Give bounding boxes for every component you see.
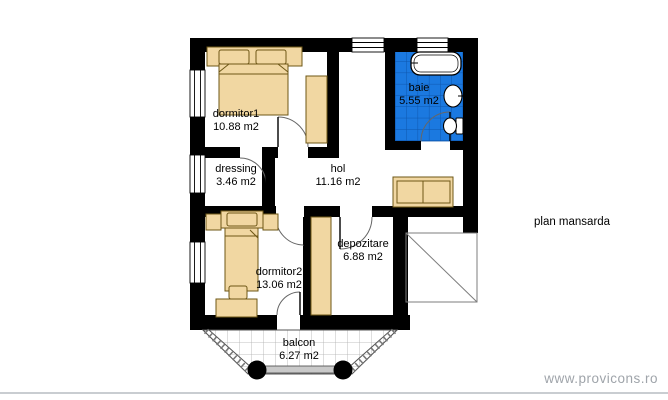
room-area: 5.55 m2 bbox=[399, 95, 439, 108]
room-area: 6.27 m2 bbox=[279, 350, 319, 363]
door-arc-dormitor1 bbox=[278, 117, 308, 147]
wall-dormitor1-east bbox=[327, 52, 339, 158]
room-label-dormitor2: dormitor2 13.06 m2 bbox=[256, 266, 302, 292]
room-name: depozitare bbox=[337, 238, 388, 251]
window-dressing-left bbox=[190, 155, 205, 193]
room-area: 10.88 m2 bbox=[213, 121, 259, 134]
wardrobe-depozitare bbox=[311, 217, 331, 315]
wall-bathroom-south-b bbox=[450, 141, 463, 150]
room-name: balcon bbox=[279, 337, 319, 350]
room-area: 11.16 m2 bbox=[315, 176, 360, 189]
room-label-hol: hol 11.16 m2 bbox=[315, 163, 360, 189]
window-hol-top bbox=[352, 38, 384, 52]
double-bed bbox=[207, 47, 302, 115]
balcony-column-right bbox=[334, 361, 353, 380]
plan-title: plan mansarda bbox=[534, 216, 610, 228]
watermark: www.provicons.ro bbox=[544, 371, 658, 386]
door-arc-balcony bbox=[277, 292, 300, 315]
wall-bathroom-west bbox=[385, 52, 395, 150]
room-name: dormitor2 bbox=[256, 266, 302, 279]
room-name: dormitor1 bbox=[213, 108, 259, 121]
window-dormitor2-left bbox=[190, 242, 205, 283]
room-name: hol bbox=[315, 163, 360, 176]
room-label-balcon: balcon 6.27 m2 bbox=[279, 337, 319, 363]
bathtub bbox=[411, 52, 461, 75]
desk bbox=[216, 299, 257, 317]
chair bbox=[229, 286, 247, 299]
footer-divider bbox=[0, 392, 668, 394]
room-area: 3.46 m2 bbox=[215, 176, 257, 189]
room-area: 13.06 m2 bbox=[256, 279, 302, 292]
room-label-baie: baie 5.55 m2 bbox=[399, 82, 439, 108]
wardrobe-dormitor1 bbox=[306, 76, 327, 143]
room-label-dressing: dressing 3.46 m2 bbox=[215, 163, 257, 189]
door-arc-dormitor2 bbox=[276, 217, 304, 245]
room-label-dormitor1: dormitor1 10.88 m2 bbox=[213, 108, 259, 134]
roof-void bbox=[406, 233, 477, 302]
wall-dressing-east bbox=[262, 147, 275, 217]
balcony-column-left bbox=[248, 361, 267, 380]
toilet bbox=[444, 118, 464, 134]
sofa bbox=[393, 177, 453, 207]
balcony-railing-bar bbox=[257, 366, 343, 373]
room-name: dressing bbox=[215, 163, 257, 176]
room-label-depozitare: depozitare 6.88 m2 bbox=[337, 238, 388, 264]
wall-middle-c bbox=[372, 206, 463, 217]
window-bathroom-top bbox=[417, 38, 448, 52]
wall-middle-b bbox=[304, 206, 340, 217]
wall-bathroom-south-a bbox=[385, 141, 421, 150]
floor-plan-page: dormitor1 10.88 m2 dressing 3.46 m2 hol … bbox=[0, 0, 668, 400]
floor-plan-drawing bbox=[0, 0, 668, 400]
wall-right bbox=[463, 38, 478, 233]
room-area: 6.88 m2 bbox=[337, 251, 388, 264]
window-dormitor1-left bbox=[190, 70, 205, 117]
room-name: baie bbox=[399, 82, 439, 95]
